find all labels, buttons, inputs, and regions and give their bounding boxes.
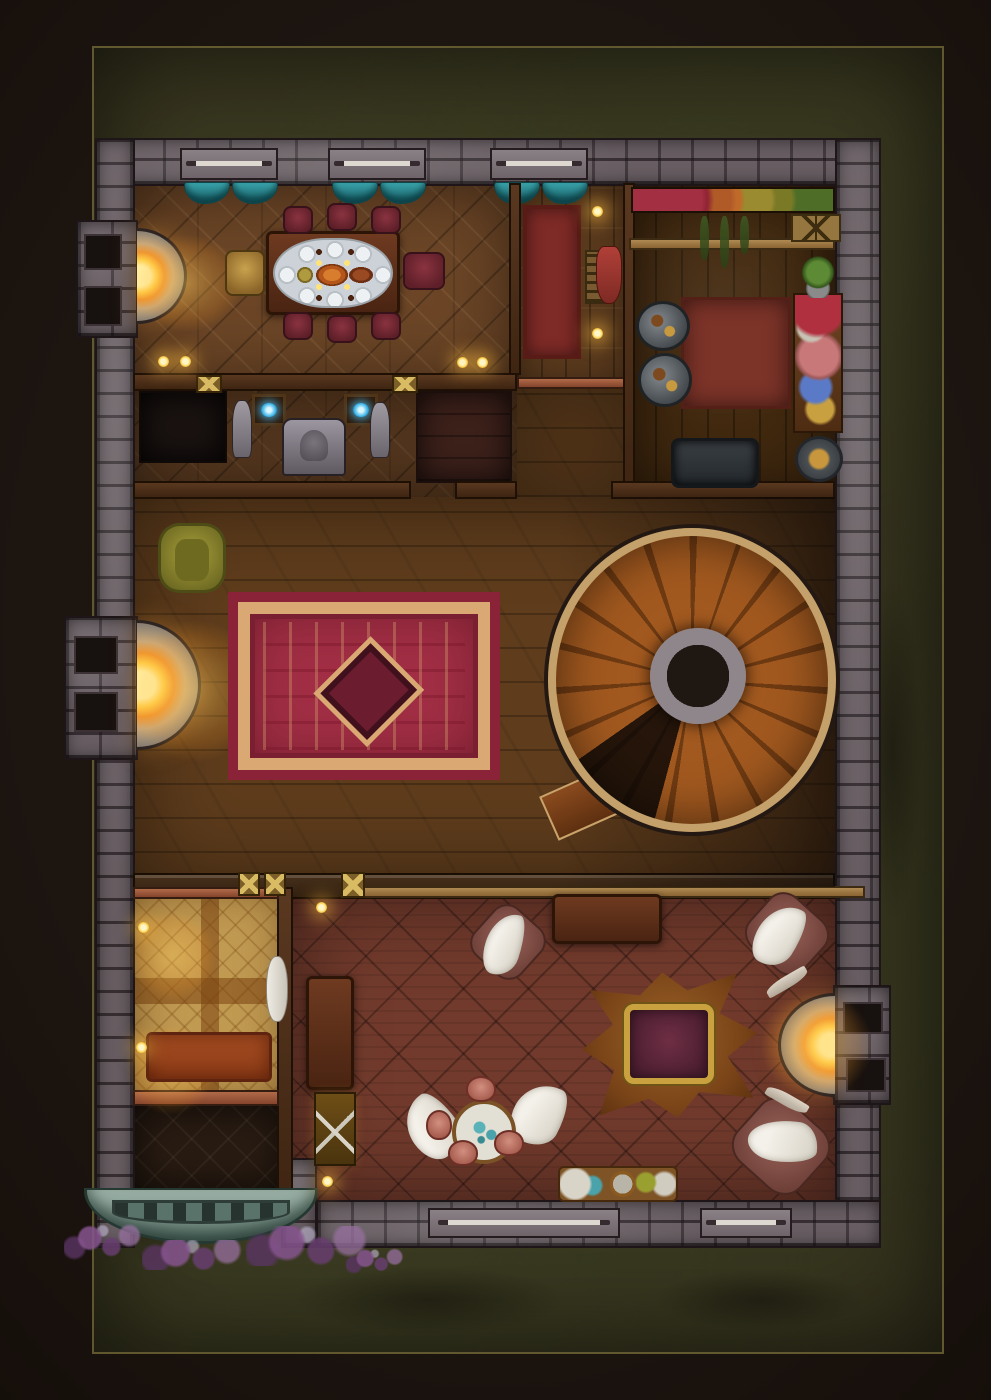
wall-corridor-south-a	[133, 481, 411, 499]
orb-painting	[252, 394, 286, 426]
shrine-fountain	[282, 418, 346, 476]
beam-hallway	[517, 377, 629, 389]
wall-corridor-south-b	[455, 481, 517, 499]
dining-chair	[283, 312, 313, 340]
vine-cluster	[142, 1240, 254, 1270]
wall-candle	[158, 356, 169, 367]
window-south-2	[700, 1208, 792, 1238]
pink-chair	[448, 1140, 478, 1166]
dining-armchair	[403, 252, 445, 290]
bedroll	[266, 956, 288, 1022]
runner-rug	[523, 205, 581, 359]
stove-pot	[638, 353, 692, 407]
grass-patch	[250, 1255, 610, 1345]
floor-storage-room	[416, 391, 512, 483]
pink-chair	[466, 1076, 496, 1102]
hanging-herb	[700, 216, 709, 260]
wall-candle	[138, 922, 149, 933]
pink-chair	[426, 1110, 452, 1140]
wall-torch	[316, 902, 327, 913]
cook-pot	[795, 436, 843, 482]
wall-candle	[592, 206, 603, 217]
wall-hallway-kitchen	[623, 183, 635, 497]
wall-candle	[180, 356, 191, 367]
dining-chair	[371, 312, 401, 340]
wall-post-ornament	[264, 872, 286, 896]
wall-candle	[477, 357, 488, 368]
candle-glow	[112, 896, 232, 1016]
wall-post-ornament	[196, 375, 222, 393]
throne	[624, 1004, 714, 1084]
wall-post-ornament	[341, 872, 365, 898]
window-south-1	[428, 1208, 620, 1238]
vine-cluster	[64, 1222, 150, 1262]
wall-post-ornament	[392, 375, 418, 393]
stove-pot	[636, 301, 690, 351]
pink-chair	[494, 1130, 524, 1156]
wall-post-ornament	[238, 872, 260, 896]
grass-patch	[620, 1260, 900, 1340]
potted-plant	[795, 254, 841, 298]
wall-dining-south	[133, 373, 517, 391]
wall-candle	[136, 1042, 147, 1053]
dining-chair	[371, 206, 401, 234]
wall-dining-hallway	[509, 183, 521, 375]
window-north-1	[180, 148, 278, 180]
floor-closet	[139, 391, 227, 463]
kitchen-rug	[681, 297, 791, 409]
weapon-case	[314, 1092, 356, 1166]
crates	[791, 214, 841, 242]
dining-chair	[327, 315, 357, 343]
wall-candle	[457, 357, 468, 368]
hanging-herb	[740, 216, 749, 254]
dining-chair	[283, 206, 313, 234]
side-bench	[306, 976, 354, 1090]
bar-table	[552, 894, 662, 944]
kitchen-food-shelf	[631, 187, 835, 213]
window-north-2	[328, 148, 426, 180]
hanging-cloth	[596, 246, 622, 304]
dining-chair	[327, 203, 357, 231]
hanging-herb	[720, 216, 729, 268]
dining-tablecloth	[273, 238, 393, 308]
armchair-green	[158, 523, 226, 593]
stair-center-column	[650, 628, 746, 724]
statue	[232, 400, 252, 458]
window-north-3	[490, 148, 588, 180]
dining-head-chair	[225, 250, 265, 296]
battle-map-canvas	[0, 0, 991, 1400]
prep-table	[793, 293, 843, 433]
wall-candle	[592, 328, 603, 339]
wall-torch	[322, 1176, 333, 1187]
bed	[146, 1032, 272, 1082]
sink-basin	[671, 438, 759, 488]
large-rug	[228, 592, 500, 780]
serving-tray	[558, 1166, 678, 1202]
statue	[370, 402, 390, 458]
wall-bedroom-tavern	[277, 887, 293, 1204]
vine-cluster	[346, 1248, 410, 1274]
